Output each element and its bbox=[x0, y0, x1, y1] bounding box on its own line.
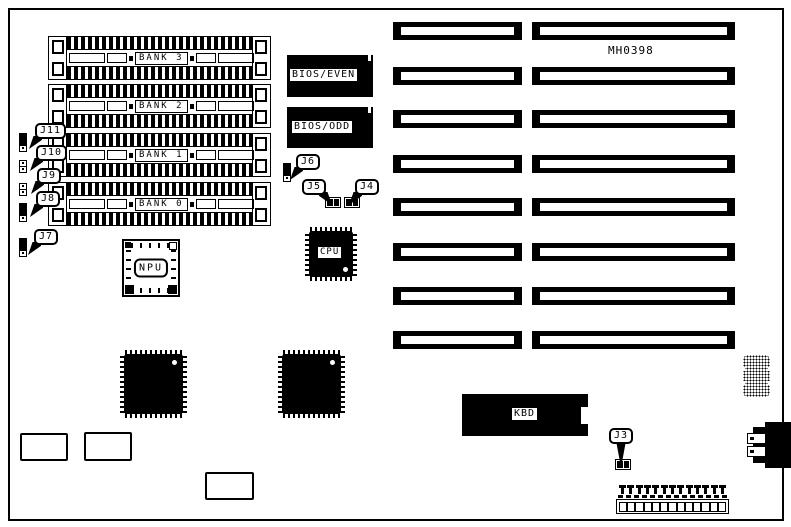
memory-bank-0: BANK 0 bbox=[48, 182, 271, 226]
oscillator-component-1 bbox=[20, 433, 68, 461]
bios-odd-label: BIOS/ODD bbox=[291, 120, 353, 134]
power-connector-housing bbox=[616, 499, 729, 514]
jumper-block-j7 bbox=[19, 238, 27, 257]
expansion-slot-6-long bbox=[532, 243, 735, 261]
expansion-slot-1-short bbox=[393, 22, 522, 40]
expansion-slot-4-long bbox=[532, 155, 735, 173]
simm-pin-row bbox=[67, 66, 252, 79]
qfp-chip-left bbox=[120, 350, 187, 418]
expansion-slot-1-long bbox=[532, 22, 735, 40]
cpu-label: CPU bbox=[317, 246, 342, 259]
pin1-dot bbox=[330, 360, 335, 365]
memory-bank-2: BANK 2 bbox=[48, 84, 271, 128]
j7-label: J7 bbox=[34, 229, 58, 245]
jumper-callout-j7: J7 bbox=[34, 224, 58, 245]
jumper-callout-j10: J10 bbox=[36, 140, 67, 161]
expansion-slot-7-short bbox=[393, 287, 522, 305]
npu-socket: NPU bbox=[122, 239, 180, 297]
j8-label: J8 bbox=[36, 191, 60, 207]
simm-pin-row bbox=[67, 37, 252, 50]
simm-socket-right-latch bbox=[252, 134, 270, 176]
jumper-callout-j11: J11 bbox=[35, 118, 66, 139]
kbd-controller-chip: KBD bbox=[462, 394, 588, 436]
simm-socket-left-latch bbox=[49, 37, 67, 79]
jumper-block-j3 bbox=[615, 459, 631, 470]
jumper-block-j9 bbox=[19, 183, 27, 196]
keyboard-connector-pin-box bbox=[747, 433, 766, 444]
simm-pin-row bbox=[67, 85, 252, 98]
simm-pin-row bbox=[67, 114, 252, 127]
qfp-chip-right bbox=[278, 350, 345, 418]
jumper-callout-j6: J6 bbox=[296, 149, 320, 170]
oscillator-component-2 bbox=[84, 432, 132, 461]
expansion-slot-2-long bbox=[532, 67, 735, 85]
simm-pin-row bbox=[67, 134, 252, 147]
bank-1-label: BANK 1 bbox=[135, 149, 188, 162]
simm-socket-right-latch bbox=[252, 183, 270, 225]
j4-label: J4 bbox=[355, 179, 379, 195]
expansion-slot-5-long bbox=[532, 198, 735, 216]
kbd-label: KBD bbox=[511, 407, 538, 421]
j9-label: J9 bbox=[37, 168, 61, 184]
simm-socket-right-latch bbox=[252, 37, 270, 79]
bios-even-chip: BIOS/EVEN bbox=[287, 55, 373, 97]
keyboard-connector-pin-box bbox=[747, 446, 766, 457]
keyboard-connector bbox=[765, 422, 791, 468]
expansion-slot-6-short bbox=[393, 243, 522, 261]
simm-pin-row bbox=[67, 163, 252, 176]
jumper-callout-j4: J4 bbox=[355, 174, 379, 195]
jumper-block-j8 bbox=[19, 203, 27, 222]
j10-label: J10 bbox=[36, 145, 67, 161]
j11-label: J11 bbox=[35, 123, 66, 139]
power-connector bbox=[616, 485, 729, 514]
bios-even-label: BIOS/EVEN bbox=[289, 68, 358, 82]
bank-0-label: BANK 0 bbox=[135, 198, 188, 211]
expansion-slot-7-long bbox=[532, 287, 735, 305]
bank-3-label: BANK 3 bbox=[135, 52, 188, 65]
j6-label: J6 bbox=[296, 154, 320, 170]
simm-pin-row bbox=[67, 183, 252, 196]
expansion-slot-5-short bbox=[393, 198, 522, 216]
motherboard-diagram: BANK 3 BANK 2 bbox=[0, 0, 791, 527]
oscillator-component-3 bbox=[205, 472, 254, 500]
memory-bank-1: BANK 1 bbox=[48, 133, 271, 177]
expansion-slot-2-short bbox=[393, 67, 522, 85]
jumper-block-j11 bbox=[19, 133, 27, 152]
expansion-slot-3-short bbox=[393, 110, 522, 128]
expansion-slot-8-short bbox=[393, 331, 522, 349]
j5-label: J5 bbox=[302, 179, 326, 195]
jumper-callout-j9: J9 bbox=[37, 163, 61, 184]
power-connector-pins bbox=[616, 485, 729, 494]
pin1-dot bbox=[172, 360, 177, 365]
cpu-chip: CPU bbox=[305, 227, 357, 281]
part-number-label: MH0398 bbox=[608, 44, 654, 57]
memory-bank-3: BANK 3 bbox=[48, 36, 271, 80]
j3-label: J3 bbox=[609, 428, 633, 444]
jumper-block-j6 bbox=[283, 163, 291, 182]
jumper-block-j10 bbox=[19, 160, 27, 173]
expansion-slot-3-long bbox=[532, 110, 735, 128]
expansion-slot-4-short bbox=[393, 155, 522, 173]
bank-2-label: BANK 2 bbox=[135, 100, 188, 113]
din-connector-footprint bbox=[743, 355, 770, 397]
jumper-callout-j5: J5 bbox=[302, 174, 326, 195]
jumper-callout-j8: J8 bbox=[36, 186, 60, 207]
pin1-dot bbox=[343, 267, 348, 272]
bios-odd-chip: BIOS/ODD bbox=[287, 107, 373, 148]
expansion-slot-8-long bbox=[532, 331, 735, 349]
simm-socket-right-latch bbox=[252, 85, 270, 127]
simm-pin-row bbox=[67, 212, 252, 225]
jumper-callout-j3: J3 bbox=[609, 423, 633, 444]
npu-label: NPU bbox=[134, 259, 168, 278]
